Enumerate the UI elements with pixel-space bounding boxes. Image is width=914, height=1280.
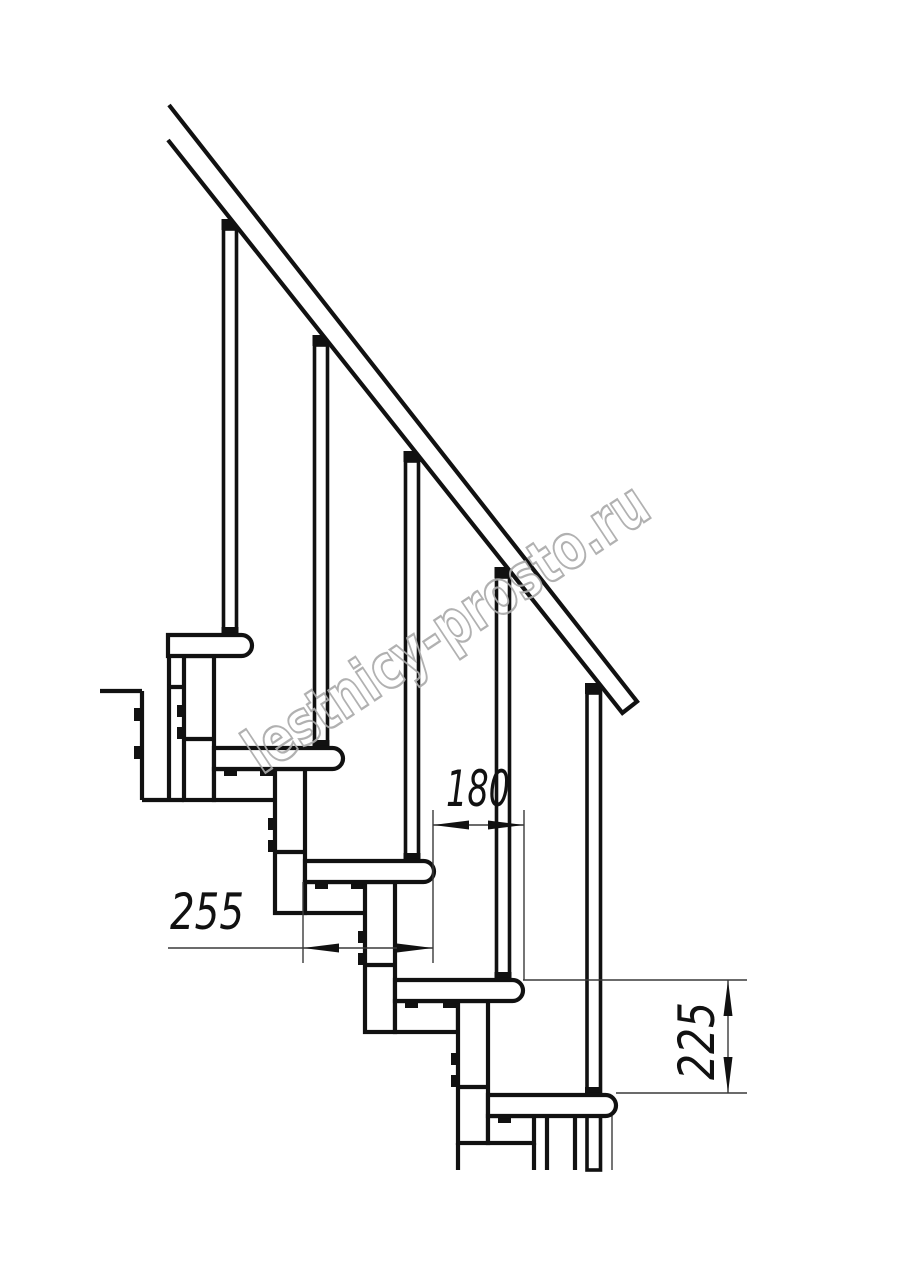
module-cut-left bbox=[100, 656, 187, 800]
bolt-tab bbox=[451, 1075, 458, 1087]
staircase-drawing-canvas: 180 255 225 lestnicy-prosto.ru bbox=[0, 0, 914, 1280]
tread-3 bbox=[305, 861, 434, 882]
dimension-label-step-run: 180 bbox=[446, 760, 510, 818]
bolt-tab bbox=[134, 746, 142, 759]
dimension-label-riser-height: 225 bbox=[668, 1002, 726, 1080]
bolt-tab bbox=[177, 705, 184, 717]
bolt-tab bbox=[177, 727, 184, 739]
baluster-1 bbox=[222, 219, 239, 635]
bolt-tab bbox=[268, 818, 275, 830]
arrowhead-left bbox=[433, 821, 469, 830]
baluster-tube-below-tread bbox=[587, 1116, 601, 1170]
tread-5 bbox=[488, 1095, 616, 1116]
bolt-tab bbox=[358, 931, 365, 943]
tread-1 bbox=[168, 635, 252, 656]
tread-4 bbox=[395, 980, 523, 1001]
arrowhead-right bbox=[397, 944, 433, 953]
riser-module-3 bbox=[358, 882, 458, 1032]
bolt-tab bbox=[358, 953, 365, 965]
bolt-tab bbox=[451, 1053, 458, 1065]
dimension-225: 225 bbox=[523, 980, 747, 1093]
riser-module-2 bbox=[268, 769, 367, 913]
baluster-tube bbox=[224, 229, 237, 635]
bolt-tab bbox=[134, 708, 142, 721]
treads bbox=[168, 635, 616, 1116]
baluster-tube bbox=[587, 693, 601, 1095]
riser-module-4 bbox=[451, 1001, 534, 1170]
dimension-label-tread-depth: 255 bbox=[170, 883, 244, 941]
arrowhead-left bbox=[303, 944, 339, 953]
staircase-drawing: 180 255 225 lestnicy-prosto.ru bbox=[0, 0, 914, 1280]
bolt-tab bbox=[268, 840, 275, 852]
